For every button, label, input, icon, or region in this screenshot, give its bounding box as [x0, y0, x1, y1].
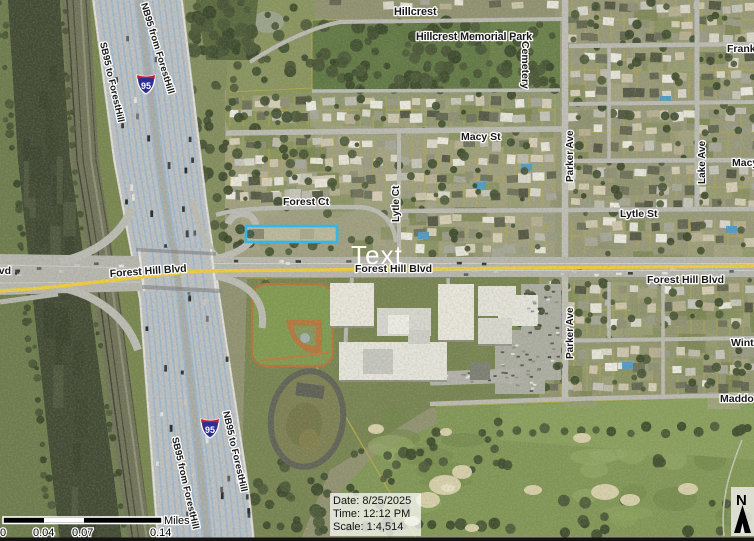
svg-text:N: N	[736, 492, 747, 509]
svg-text:Forest Hill Blvd: Forest Hill Blvd	[647, 274, 724, 286]
svg-text:Macy St: Macy St	[461, 131, 501, 143]
svg-text:Lytle St: Lytle St	[620, 208, 658, 220]
svg-text:Scale: 1:4,514: Scale: 1:4,514	[333, 521, 403, 533]
svg-text:Lytle Ct: Lytle Ct	[391, 185, 402, 222]
svg-text:Winter St: Winter St	[731, 337, 754, 349]
svg-text:Forest Ct: Forest Ct	[283, 196, 330, 208]
svg-text:Lake Ave: Lake Ave	[697, 140, 708, 184]
svg-text:Cemetery: Cemetery	[519, 41, 531, 89]
svg-text:Time: 12:12 PM: Time: 12:12 PM	[333, 508, 410, 520]
svg-text:Parker Ave: Parker Ave	[565, 130, 576, 182]
svg-text:0: 0	[0, 527, 6, 539]
svg-text:0.04: 0.04	[33, 527, 54, 539]
svg-text:95: 95	[205, 425, 215, 435]
svg-text:Macy St: Macy St	[732, 157, 754, 169]
svg-text:0.07: 0.07	[72, 527, 93, 539]
svg-text:Parker Ave: Parker Ave	[565, 307, 576, 359]
svg-text:Text: Text	[351, 240, 403, 270]
svg-text:Franklin Rd: Franklin Rd	[727, 43, 754, 55]
svg-text:Miles: Miles	[164, 515, 190, 527]
svg-text:0.14: 0.14	[150, 527, 171, 539]
svg-text:95: 95	[141, 81, 151, 91]
svg-text:Forest Hill Blvd: Forest Hill Blvd	[0, 265, 11, 277]
svg-text:Date: 8/25/2025: Date: 8/25/2025	[333, 495, 411, 507]
svg-text:Maddock St: Maddock St	[720, 393, 754, 405]
svg-text:Hillcrest: Hillcrest	[394, 6, 437, 18]
svg-text:Hillcrest Memorial Park: Hillcrest Memorial Park	[416, 31, 533, 43]
